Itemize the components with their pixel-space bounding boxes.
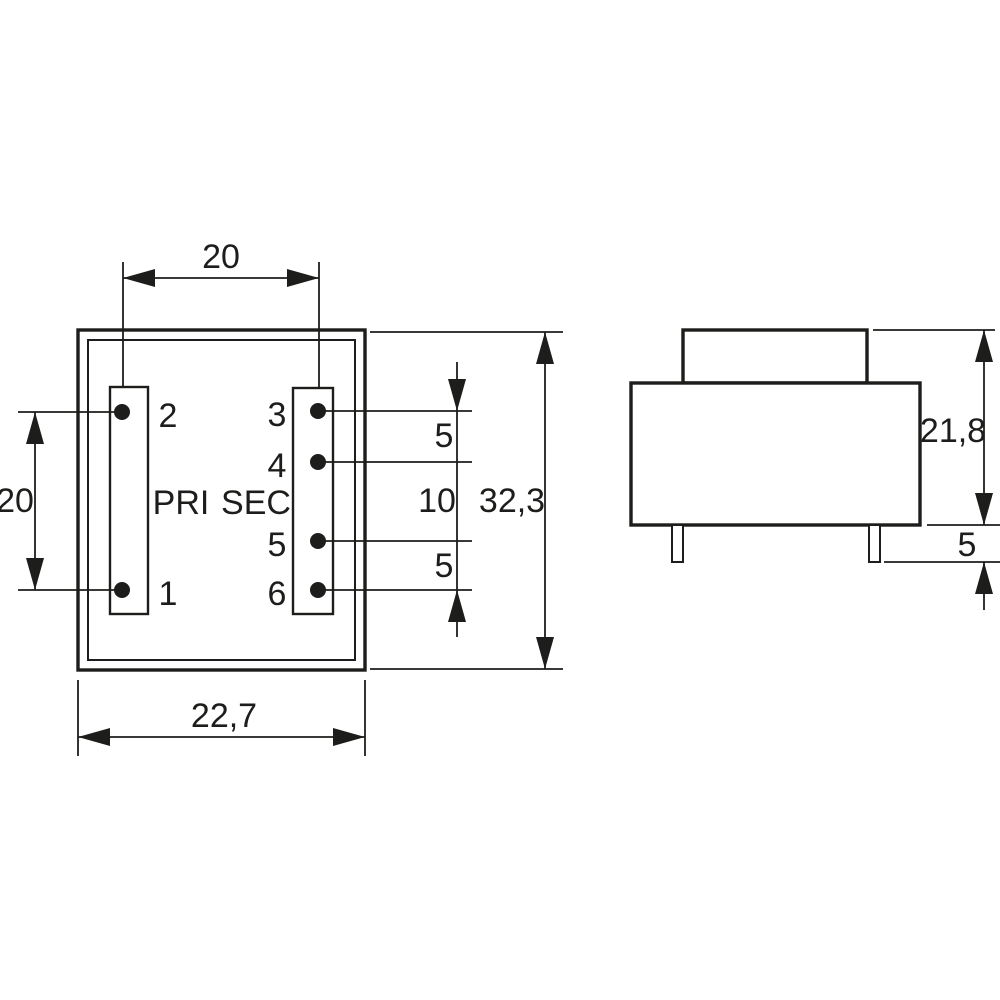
arrow-up-icon xyxy=(448,590,466,622)
top-view: 20 20 5 10 5 32,3 22,7 xyxy=(0,238,563,756)
side-view-right-pin xyxy=(869,525,880,562)
arrow-down-icon xyxy=(26,558,44,590)
arrow-down-icon xyxy=(448,379,466,411)
dim-side-height: 21,8 xyxy=(920,412,986,450)
side-view: 21,8 5 xyxy=(631,330,1000,610)
pin-3-pad xyxy=(310,403,326,419)
arrow-left-icon xyxy=(123,269,155,287)
arrow-down-icon xyxy=(536,637,554,669)
pin-1-pad xyxy=(114,582,130,598)
arrow-right-icon xyxy=(287,269,319,287)
pin-2-pad xyxy=(114,404,130,420)
dim-sec-pitch-middle: 10 xyxy=(418,482,456,520)
dim-body-length: 32,3 xyxy=(479,482,545,520)
side-view-bobbin-top xyxy=(683,330,867,383)
pin-5-pad xyxy=(310,533,326,549)
pin-4-pad xyxy=(310,454,326,470)
pin-4-label: 4 xyxy=(268,447,287,485)
pin-5-label: 5 xyxy=(268,526,287,564)
arrow-right-icon xyxy=(333,728,365,746)
arrow-up-icon xyxy=(536,332,554,364)
pin-1-label: 1 xyxy=(159,575,178,613)
secondary-winding-label: SEC xyxy=(221,484,291,522)
pin-6-label: 6 xyxy=(268,575,287,613)
pin-2-label: 2 xyxy=(159,397,178,435)
arrow-up-icon xyxy=(26,412,44,444)
side-view-left-pin xyxy=(672,525,683,562)
pin-3-label: 3 xyxy=(268,396,287,434)
dim-pin-length: 5 xyxy=(958,526,977,564)
primary-winding-label: PRI xyxy=(153,484,210,522)
pin-6-pad xyxy=(310,582,326,598)
arrow-left-icon xyxy=(78,728,110,746)
transformer-dimension-drawing: 20 20 5 10 5 32,3 22,7 xyxy=(0,0,1000,1000)
dim-pin-column-spacing: 20 xyxy=(202,238,240,276)
side-view-body xyxy=(631,383,920,525)
arrow-up-icon xyxy=(975,330,993,362)
drawing-canvas: 20 20 5 10 5 32,3 22,7 xyxy=(0,0,1000,1000)
secondary-pin-strip xyxy=(293,388,333,614)
dim-sec-pitch-top: 5 xyxy=(435,417,454,455)
dim-body-width: 22,7 xyxy=(191,697,257,735)
arrow-down-icon xyxy=(975,493,993,525)
arrow-up-icon xyxy=(975,562,993,594)
dim-sec-pitch-bottom: 5 xyxy=(435,547,454,585)
dim-primary-pitch: 20 xyxy=(0,482,34,520)
primary-pin-strip xyxy=(110,387,148,614)
